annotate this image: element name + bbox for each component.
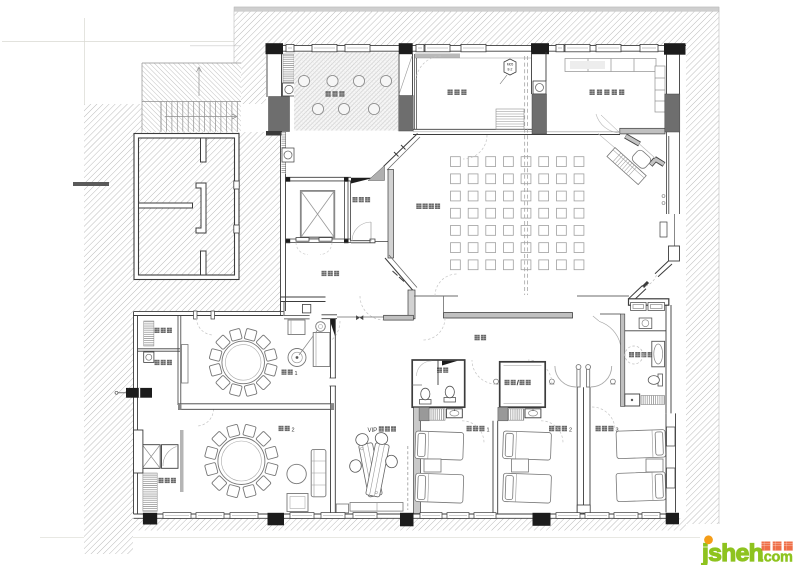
svg-text:1: 1 xyxy=(295,371,298,377)
svg-text:2: 2 xyxy=(569,428,572,434)
svg-text:VIP: VIP xyxy=(368,428,378,434)
svg-text:.com: .com xyxy=(760,550,793,565)
svg-text:1: 1 xyxy=(487,428,490,434)
svg-text:2: 2 xyxy=(292,428,295,434)
svg-text:8-2: 8-2 xyxy=(508,68,513,72)
svg-text:M05: M05 xyxy=(507,63,514,67)
